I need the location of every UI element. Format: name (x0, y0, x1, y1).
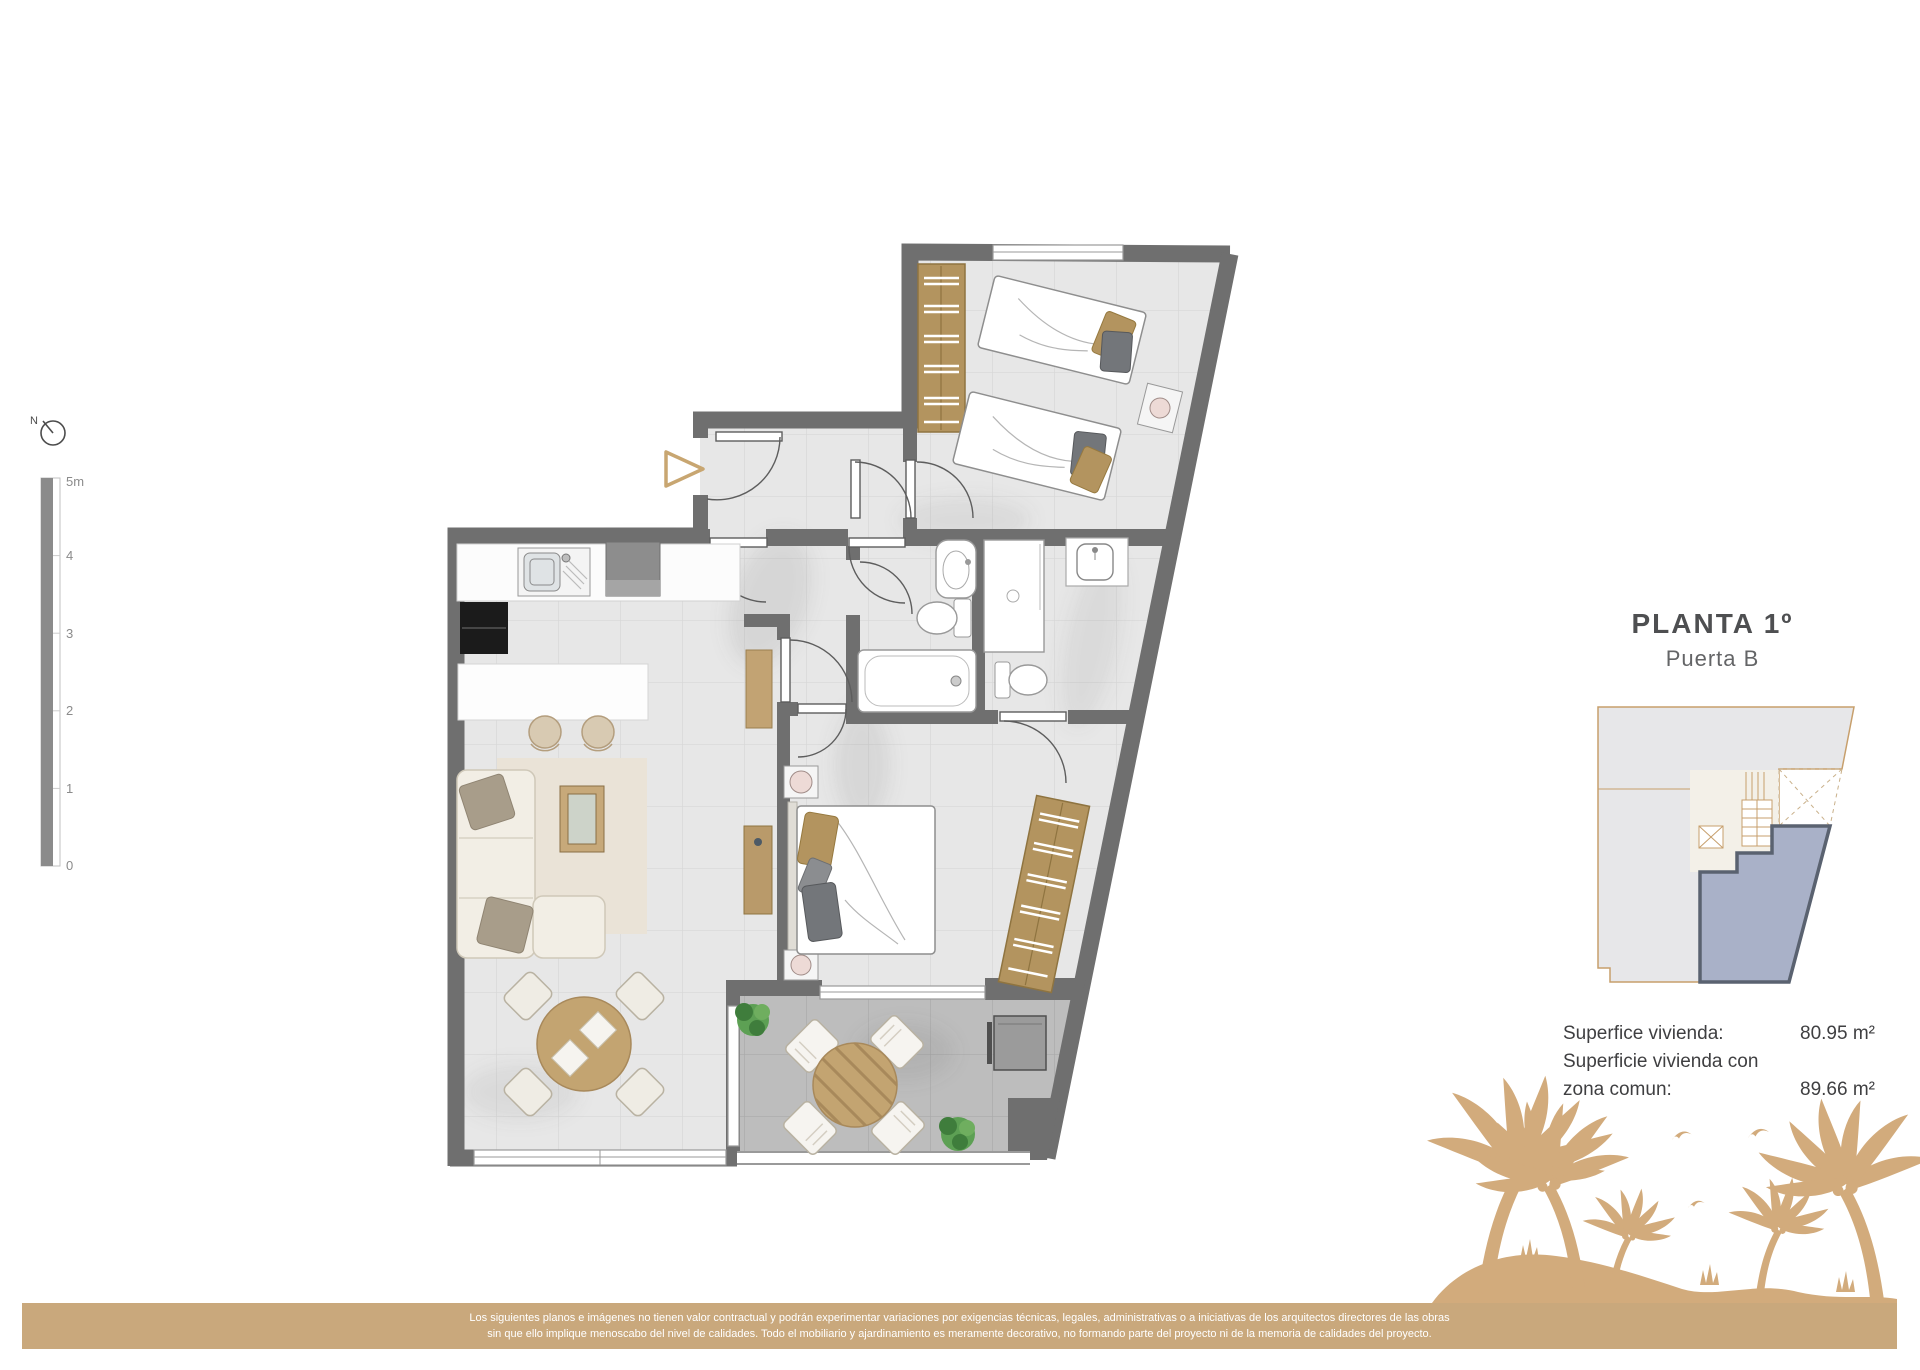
palm-tree-icon (1755, 1096, 1920, 1303)
entrance-arrow-icon (666, 452, 703, 486)
kitchen-sink (518, 548, 590, 596)
surface-areas: Superfice vivienda: 80.95 m² Superficie … (1563, 1020, 1875, 1104)
scale-label-2: 2 (66, 703, 73, 718)
area-label: zona comun: (1563, 1076, 1672, 1104)
disclaimer-line-1: Los siguientes planos e imágenes no tien… (22, 1310, 1897, 1326)
bbq-grill (987, 1016, 1046, 1070)
scale-label-5m: 5m (66, 474, 84, 489)
scale-label-3: 3 (66, 626, 73, 641)
area-row: Superficie vivienda con (1563, 1048, 1875, 1076)
area-label: Superficie vivienda con (1563, 1048, 1758, 1076)
bird-icon (1748, 1129, 1769, 1138)
floorplan-page: 5m 4 3 2 1 0 N (0, 0, 1920, 1370)
wardrobe (918, 264, 965, 432)
bird-icon (1672, 1131, 1692, 1140)
scale-label-4: 4 (66, 548, 73, 563)
sand-mound (1432, 1255, 1897, 1303)
courtyard-void (1779, 769, 1842, 826)
scale-label-1: 1 (66, 781, 73, 796)
vanity-sink (1066, 538, 1128, 586)
page-subtitle: Puerta B (1540, 646, 1885, 672)
headboard (788, 802, 797, 954)
kitchen-oven (460, 602, 508, 654)
shower (984, 540, 1044, 652)
toilet (917, 599, 971, 637)
apartment-plan (450, 245, 1230, 1184)
palm-beach-artwork (1424, 1073, 1920, 1303)
toilet (995, 662, 1047, 698)
scale-label-0: 0 (66, 858, 73, 873)
nightstand (784, 766, 818, 798)
area-row: Superfice vivienda: 80.95 m² (1563, 1020, 1875, 1048)
north-compass-icon: N (30, 415, 65, 445)
double-bed (797, 806, 935, 954)
disclaimer-line-2: sin que ello implique menoscabo del nive… (22, 1326, 1897, 1342)
area-label: Superfice vivienda: (1563, 1020, 1724, 1048)
compass-n-label: N (30, 415, 38, 427)
disclaimer-footer: Los siguientes planos e imágenes no tien… (22, 1303, 1897, 1349)
page-title: PLANTA 1º (1540, 608, 1885, 640)
coffee-table (560, 786, 604, 852)
building-locator-map (1598, 707, 1854, 982)
bathtub (858, 650, 976, 712)
kitchen-island (458, 664, 648, 720)
area-value: 80.95 m² (1800, 1020, 1875, 1048)
floorplan-drawing: 5m 4 3 2 1 0 N (0, 0, 1920, 1370)
grass-icon (1520, 1239, 1539, 1260)
kitchen-counter (457, 544, 740, 601)
plan-title-block: PLANTA 1º Puerta B (1540, 608, 1885, 672)
bird-icon (1688, 1201, 1705, 1208)
kitchen-appliance (606, 542, 660, 596)
scale-bar: 5m 4 3 2 1 0 (41, 474, 84, 873)
grass-icon (1836, 1271, 1855, 1292)
hall-shelf (746, 650, 772, 728)
bathroom-sink (936, 540, 976, 598)
grass-icon (1700, 1264, 1719, 1285)
area-row: zona comun: 89.66 m² (1563, 1076, 1875, 1104)
tv-sideboard (744, 826, 772, 914)
area-value: 89.66 m² (1800, 1076, 1875, 1104)
